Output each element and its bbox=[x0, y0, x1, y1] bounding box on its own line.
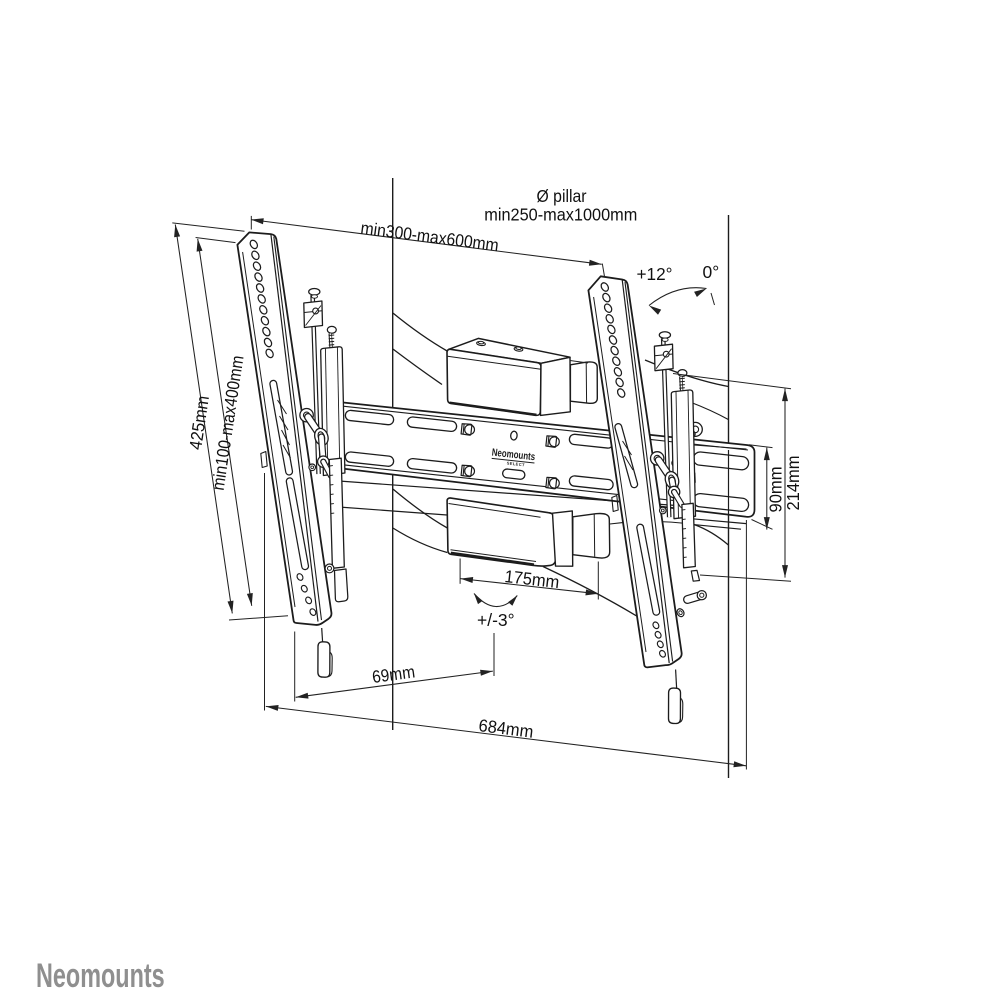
svg-text:+/-3°: +/-3° bbox=[477, 610, 515, 630]
svg-text:90mm: 90mm bbox=[766, 467, 786, 513]
svg-text:Ø pillar: Ø pillar bbox=[537, 186, 587, 206]
svg-text:214mm: 214mm bbox=[783, 456, 803, 511]
svg-text:min250-max1000mm: min250-max1000mm bbox=[484, 205, 637, 225]
svg-text:0°: 0° bbox=[703, 262, 720, 282]
svg-text:Neomounts: Neomounts bbox=[36, 957, 165, 995]
svg-text:+12°: +12° bbox=[637, 264, 673, 284]
